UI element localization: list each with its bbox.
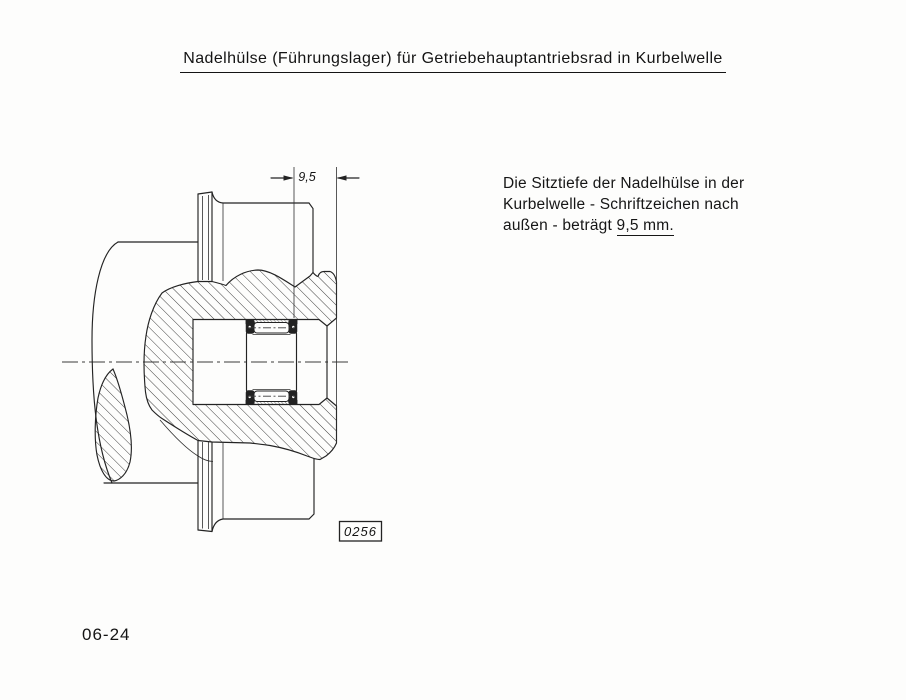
note-dimension-underlined: 9,5 mm. — [617, 217, 674, 236]
note-line-3: außen - beträgt 9,5 mm. — [503, 215, 813, 236]
figure-number: 0256 — [344, 524, 377, 539]
dimension-label: 9,5 — [298, 170, 315, 184]
flange-top — [198, 192, 313, 282]
figure-number-box: 0256 — [340, 522, 382, 542]
note-text: Die Sitztiefe der Nadelhülse in der Kurb… — [503, 173, 813, 236]
note-line-1: Die Sitztiefe der Nadelhülse in der — [503, 173, 813, 194]
technical-drawing: 9,5 0256 — [55, 150, 500, 575]
flange-bottom — [198, 441, 314, 532]
page-header: Nadelhülse (Führungslager) für Getriebeh… — [0, 50, 906, 73]
note-line-2: Kurbelwelle - Schriftzeichen nach — [503, 194, 813, 215]
counterweight-section — [95, 369, 131, 481]
page-title: Nadelhülse (Führungslager) für Getriebeh… — [180, 50, 725, 73]
page-number: 06-24 — [82, 625, 130, 645]
manual-page: { "page": { "title": "Nadelhülse (Führun… — [0, 0, 906, 700]
